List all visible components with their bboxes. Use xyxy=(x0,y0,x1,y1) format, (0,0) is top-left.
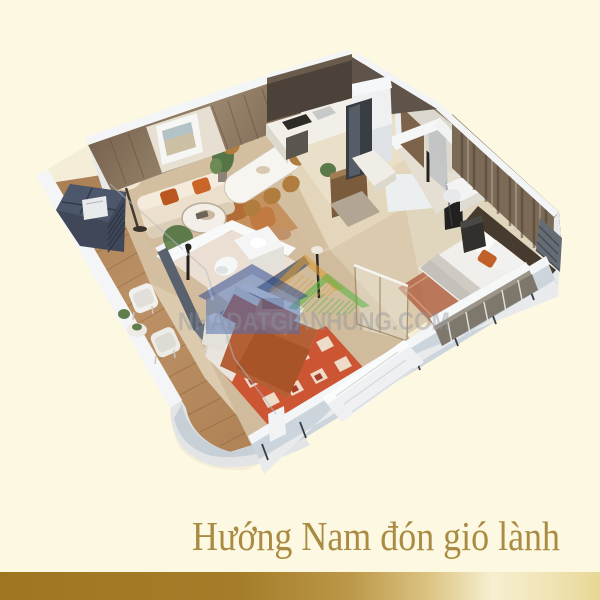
svg-text:Hướng Nam đón gió lành: Hướng Nam đón gió lành xyxy=(192,513,560,559)
svg-text:NHADATGIANHUNG.COM: NHADATGIANHUNG.COM xyxy=(178,308,450,336)
